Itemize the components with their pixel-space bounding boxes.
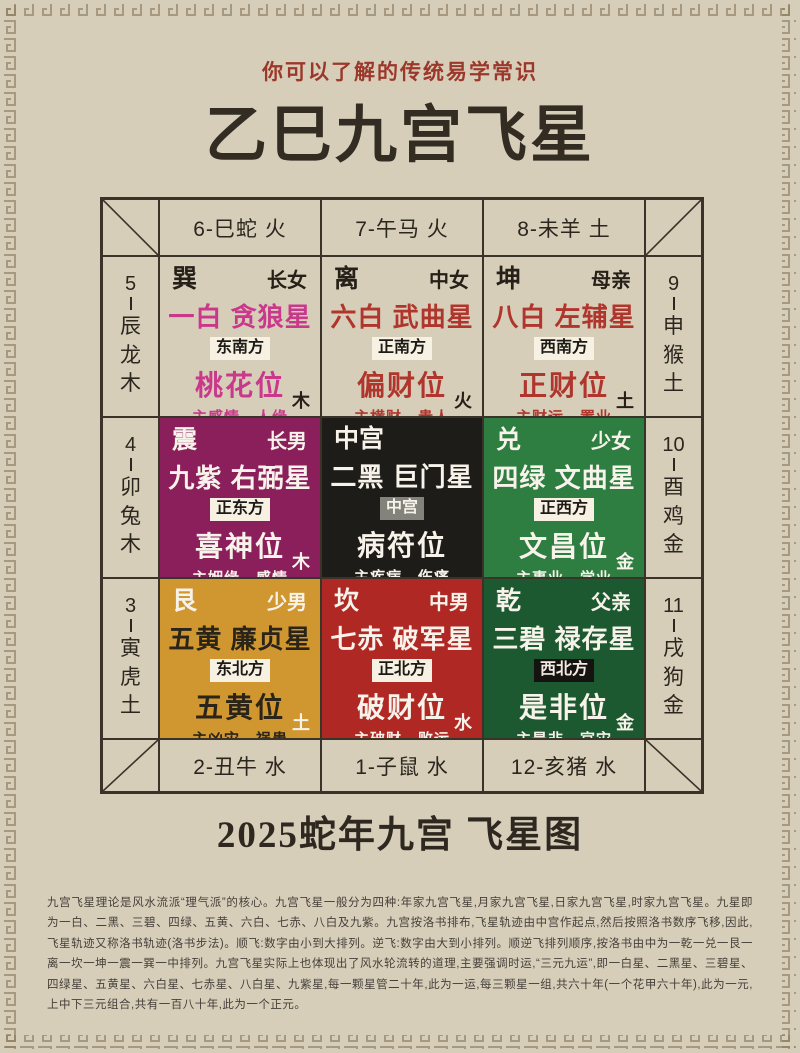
- direction-badge: 西北方: [534, 659, 594, 682]
- position-meaning: 主凶灾、祸患: [192, 728, 288, 739]
- position-name: 是非位: [519, 686, 609, 726]
- position-name: 文昌位: [519, 525, 609, 565]
- position-meaning: 主事业、学业: [516, 567, 612, 578]
- frame-corner-top-left: [102, 199, 159, 256]
- zodiac-label-left-mao: 4 卯兔木: [102, 417, 159, 578]
- zodiac-label-top-wei: 8-未羊 土: [483, 199, 645, 256]
- zodiac-label-right-you: 10 酉鸡金: [645, 417, 702, 578]
- family-relation: 父亲: [591, 586, 631, 615]
- position-name: 破财位: [357, 686, 447, 726]
- zodiac-label-bottom-zi: 1-子鼠 水: [321, 739, 483, 792]
- zodiac-label-bottom-hai: 12-亥猪 水: [483, 739, 645, 792]
- zodiac-label-right-shen: 9 申猴土: [645, 256, 702, 417]
- dash-divider: [673, 619, 675, 632]
- zodiac-name: 申猴土: [662, 313, 685, 398]
- element-label: 金: [616, 548, 634, 574]
- flying-star: 五黄 廉贞星: [168, 619, 311, 656]
- zodiac-name: 辰龙木: [119, 313, 142, 398]
- position-meaning: 主破财、败运: [354, 728, 450, 739]
- trigram-label: 艮: [172, 587, 197, 616]
- element-label: 木: [292, 548, 310, 574]
- palace-kun: 坤 母亲 八白 左辅星 西南方 正财位 主财运、置业 土: [483, 256, 645, 417]
- poster-caption: 2025蛇年九宫 飞星图: [0, 804, 800, 858]
- poster: 你可以了解的传统易学常识 乙巳九宫飞星 6-巳蛇 火 7-午马 火 8-未羊 土…: [0, 0, 800, 1053]
- palace-zhen: 震 长男 九紫 右弼星 正东方 喜神位 主姻缘、感情 木: [159, 417, 321, 578]
- zodiac-label-top-si: 6-巳蛇 火: [159, 199, 321, 256]
- element-label: 火: [454, 387, 472, 413]
- trigram-label: 坤: [496, 265, 521, 294]
- family-relation: 长女: [267, 264, 307, 293]
- trigram-label: 坎: [334, 587, 359, 616]
- zodiac-name: 寅虎土: [119, 635, 142, 720]
- position-meaning: 主姻缘、感情: [192, 567, 288, 578]
- trigram-label: 巽: [172, 265, 197, 294]
- element-label: 金: [616, 709, 634, 735]
- trigram-label: 乾: [496, 587, 521, 616]
- direction-badge: 东北方: [210, 659, 270, 682]
- zodiac-name: 卯兔木: [119, 474, 142, 559]
- direction-badge: 东南方: [210, 337, 270, 360]
- direction-badge: 正西方: [534, 498, 594, 521]
- flying-star: 一白 贪狼星: [168, 297, 311, 334]
- position-meaning: 主是非、官灾: [516, 728, 612, 739]
- palace-gen: 艮 少男 五黄 廉贞星 东北方 五黄位 主凶灾、祸患 土: [159, 578, 321, 739]
- position-meaning: 主横财、贵人: [354, 406, 450, 417]
- family-relation: 少女: [591, 425, 631, 454]
- direction-badge: 正南方: [372, 337, 432, 360]
- zodiac-name: 戌狗金: [662, 635, 685, 720]
- dash-divider: [130, 619, 132, 632]
- frame-corner-bottom-left: [102, 739, 159, 792]
- element-label: 土: [616, 387, 634, 413]
- trigram-label: 兑: [496, 426, 521, 455]
- theory-paragraph: 九宫飞星理论是风水流派“理气派”的核心。九宫飞星一般分为四种:年家九宫飞星,月家…: [47, 893, 753, 1016]
- palace-dui: 兑 少女 四绿 文曲星 正西方 文昌位 主事业、学业 金: [483, 417, 645, 578]
- poster-subtitle: 你可以了解的传统易学常识: [0, 56, 800, 86]
- family-relation: 长男: [267, 425, 307, 454]
- position-name: 病符位: [357, 524, 447, 564]
- zodiac-label-left-yin: 3 寅虎土: [102, 578, 159, 739]
- element-label: 木: [292, 387, 310, 413]
- flying-star: 二黑 巨门星: [330, 457, 473, 494]
- frame-corner-top-right: [645, 199, 702, 256]
- position-name: 偏财位: [357, 364, 447, 404]
- palace-qian: 乾 父亲 三碧 禄存星 西北方 是非位 主是非、官灾 金: [483, 578, 645, 739]
- family-relation: 中女: [429, 264, 469, 293]
- zodiac-number: 3: [125, 596, 136, 616]
- flying-star: 四绿 文曲星: [492, 458, 635, 495]
- zodiac-number: 10: [662, 435, 684, 455]
- flying-star: 八白 左辅星: [492, 297, 635, 334]
- flying-star: 七赤 破军星: [330, 619, 473, 656]
- dash-divider: [673, 297, 675, 310]
- direction-badge: 西南方: [534, 337, 594, 360]
- palace-center: 中宫 二黑 巨门星 中宫 病符位 主疾病、伤痛: [321, 417, 483, 578]
- family-relation: 中男: [429, 586, 469, 615]
- zodiac-label-bottom-chou: 2-丑牛 水: [159, 739, 321, 792]
- direction-badge: 中宫: [380, 497, 424, 520]
- direction-badge: 正北方: [372, 659, 432, 682]
- position-name: 五黄位: [195, 686, 285, 726]
- zodiac-number: 11: [663, 596, 684, 616]
- flying-star: 六白 武曲星: [330, 297, 473, 334]
- flying-star: 九紫 右弼星: [168, 458, 311, 495]
- zodiac-number: 4: [125, 435, 136, 455]
- zodiac-label-right-xu: 11 戌狗金: [645, 578, 702, 739]
- zodiac-label-left-chen: 5 辰龙木: [102, 256, 159, 417]
- position-name: 喜神位: [195, 525, 285, 565]
- zodiac-number: 5: [125, 274, 136, 294]
- family-relation: 母亲: [591, 264, 631, 293]
- dash-divider: [130, 458, 132, 471]
- position-meaning: 主疾病、伤痛: [354, 566, 450, 578]
- zodiac-name: 酉鸡金: [662, 474, 685, 559]
- flying-star: 三碧 禄存星: [492, 619, 635, 656]
- element-label: 水: [454, 709, 472, 735]
- dash-divider: [673, 458, 675, 471]
- family-relation: 少男: [267, 586, 307, 615]
- trigram-label: 中宫: [334, 425, 384, 454]
- poster-title: 乙巳九宫飞星: [0, 84, 800, 174]
- zodiac-label-top-wu: 7-午马 火: [321, 199, 483, 256]
- trigram-label: 震: [172, 426, 197, 455]
- position-name: 桃花位: [195, 364, 285, 404]
- palace-xun: 巽 长女 一白 贪狼星 东南方 桃花位 主感情、人缘 木: [159, 256, 321, 417]
- palace-li: 离 中女 六白 武曲星 正南方 偏财位 主横财、贵人 火: [321, 256, 483, 417]
- position-meaning: 主感情、人缘: [192, 406, 288, 417]
- direction-badge: 正东方: [210, 498, 270, 521]
- element-label: 土: [292, 709, 310, 735]
- position-meaning: 主财运、置业: [516, 406, 612, 417]
- frame-corner-bottom-right: [645, 739, 702, 792]
- nine-palace-diagram: 6-巳蛇 火 7-午马 火 8-未羊 土 5 辰龙木 巽 长女 一白 贪狼星 东…: [100, 197, 704, 794]
- trigram-label: 离: [334, 265, 359, 294]
- zodiac-number: 9: [668, 274, 679, 294]
- palace-kan: 坎 中男 七赤 破军星 正北方 破财位 主破财、败运 水: [321, 578, 483, 739]
- position-name: 正财位: [519, 364, 609, 404]
- dash-divider: [130, 297, 132, 310]
